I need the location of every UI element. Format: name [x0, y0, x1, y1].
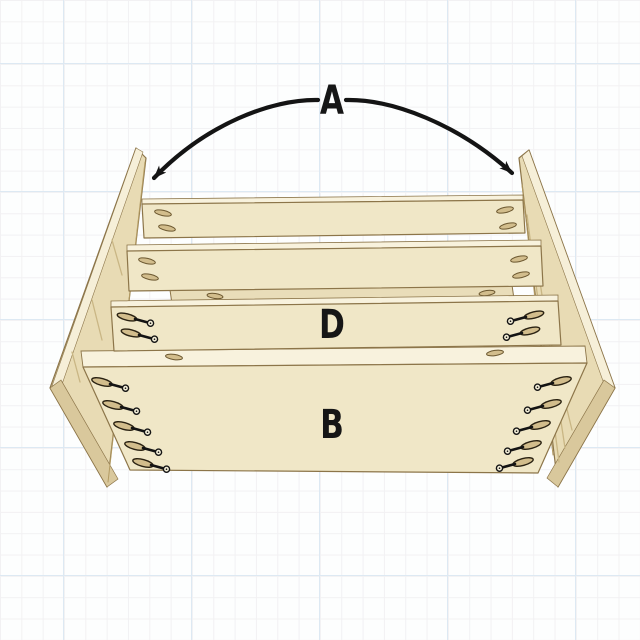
second-rail	[127, 240, 543, 291]
arrow-a-label: A	[320, 78, 344, 124]
board-b-label: B	[320, 402, 344, 448]
rail-d-label: D	[319, 302, 345, 348]
label-a: A	[320, 78, 344, 124]
arrow-curve-left	[154, 100, 318, 178]
diagram-canvas: B D A	[0, 0, 640, 640]
arrow-curve-right	[346, 100, 512, 173]
assembly-diagram: B D A	[0, 0, 640, 640]
rail-face	[127, 246, 543, 291]
bottom-board-b: B	[81, 346, 587, 473]
label-b: B	[320, 402, 344, 448]
top-rail	[142, 195, 525, 238]
dimension-arrow-a: A	[154, 78, 512, 178]
rail-d: D	[111, 295, 561, 351]
label-d: D	[319, 302, 345, 348]
rail-face	[142, 200, 525, 238]
